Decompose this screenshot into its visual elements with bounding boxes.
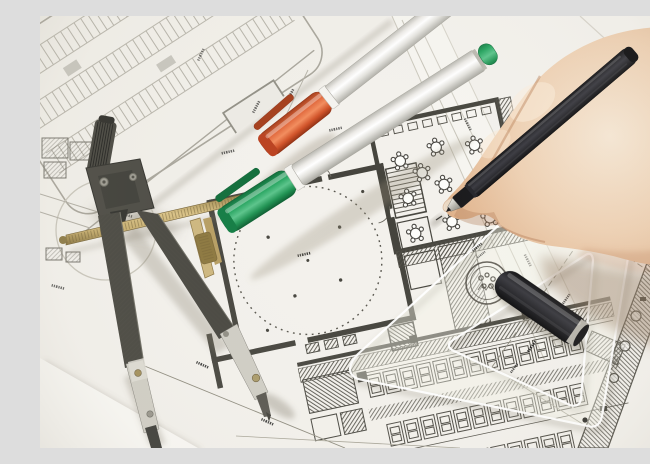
vignette (40, 16, 650, 448)
photo-canvas (40, 16, 650, 448)
photo-architect-desk: Architect's hand drawing with a black fi… (40, 16, 650, 448)
